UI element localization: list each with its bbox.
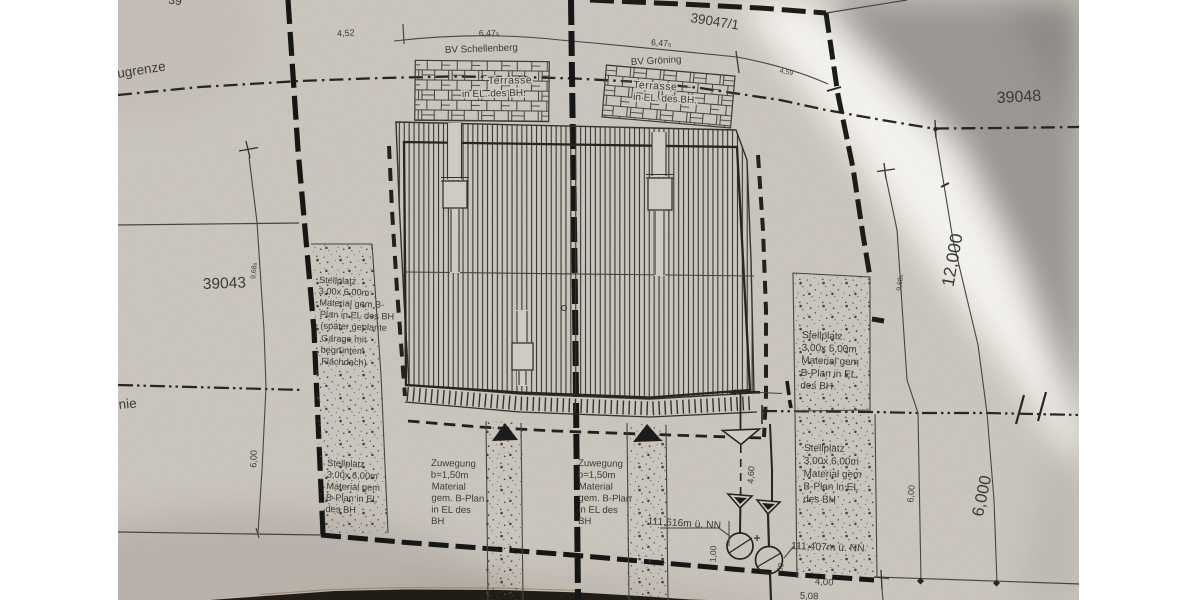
svg-text:4,52: 4,52 — [337, 28, 355, 39]
svg-text:Stellplatz: Stellplatz — [804, 443, 845, 455]
svg-text:Garage mit: Garage mit — [321, 333, 367, 345]
svg-text:4,00: 4,00 — [815, 576, 834, 588]
svg-text:Zuwegung: Zuwegung — [431, 458, 476, 470]
svg-text:des BH: des BH — [803, 494, 836, 506]
svg-text:in EL. des BH.: in EL. des BH. — [462, 88, 526, 100]
svg-text:Material gem: Material gem — [801, 355, 859, 368]
svg-text:Material gem: Material gem — [804, 469, 862, 481]
svg-text:Terrasse: Terrasse — [488, 74, 532, 87]
svg-text:Zuwegung: Zuwegung — [578, 458, 623, 470]
svg-text:39048: 39048 — [996, 88, 1041, 107]
svg-text:6,00: 6,00 — [248, 450, 259, 468]
svg-text:b=1,50m: b=1,50m — [431, 470, 469, 482]
svg-text:Stellplatz: Stellplatz — [319, 275, 357, 286]
svg-text:B-Plan in EL: B-Plan in EL — [801, 368, 857, 381]
svg-text:9,68s: 9,68s — [250, 262, 258, 279]
svg-text:Material: Material — [432, 481, 466, 493]
svg-text:in EL des: in EL des — [578, 504, 618, 516]
svg-text:gem. B-Plan: gem. B-Plan — [431, 493, 484, 505]
svg-text:begrüntem: begrüntem — [321, 345, 366, 357]
svg-text:gem. B-Plan: gem. B-Plan — [578, 493, 631, 505]
svg-text:4,60: 4,60 — [746, 466, 757, 484]
svg-text:39043: 39043 — [203, 275, 247, 293]
svg-text:nie: nie — [118, 395, 137, 412]
svg-text:B-Plan in EL: B-Plan in EL — [803, 481, 859, 493]
svg-text:Material: Material — [579, 481, 613, 493]
svg-text:1,00: 1,00 — [708, 545, 719, 562]
svg-text:3,00x 6,00m: 3,00x 6,00m — [327, 469, 379, 481]
svg-text:6,00: 6,00 — [905, 485, 916, 503]
svg-text:Terrasse: Terrasse — [633, 79, 678, 93]
svg-text:BH: BH — [578, 516, 592, 527]
svg-text:Flachdach): Flachdach) — [321, 356, 367, 368]
svg-text:5,08: 5,08 — [800, 591, 819, 600]
svg-text:3,00x 6,00m: 3,00x 6,00m — [319, 286, 370, 298]
svg-text:Stellplatz: Stellplatz — [802, 330, 843, 342]
svg-text:des BH: des BH — [800, 380, 833, 392]
svg-text:in EL des: in EL des — [431, 504, 471, 516]
svg-text:B-Plan in EL: B-Plan in EL — [326, 492, 378, 504]
svg-text:3,00x 6,00m: 3,00x 6,00m — [804, 456, 859, 468]
svg-text:b=1,50m: b=1,50m — [578, 470, 616, 482]
svg-text:Stellplatz: Stellplatz — [327, 458, 365, 469]
svg-text:3,00x 5,00m: 3,00x 5,00m — [801, 343, 856, 356]
svg-text:Material gem: Material gem — [326, 481, 380, 493]
svg-text:BH: BH — [431, 516, 445, 527]
svg-text:des BH: des BH — [325, 504, 356, 515]
